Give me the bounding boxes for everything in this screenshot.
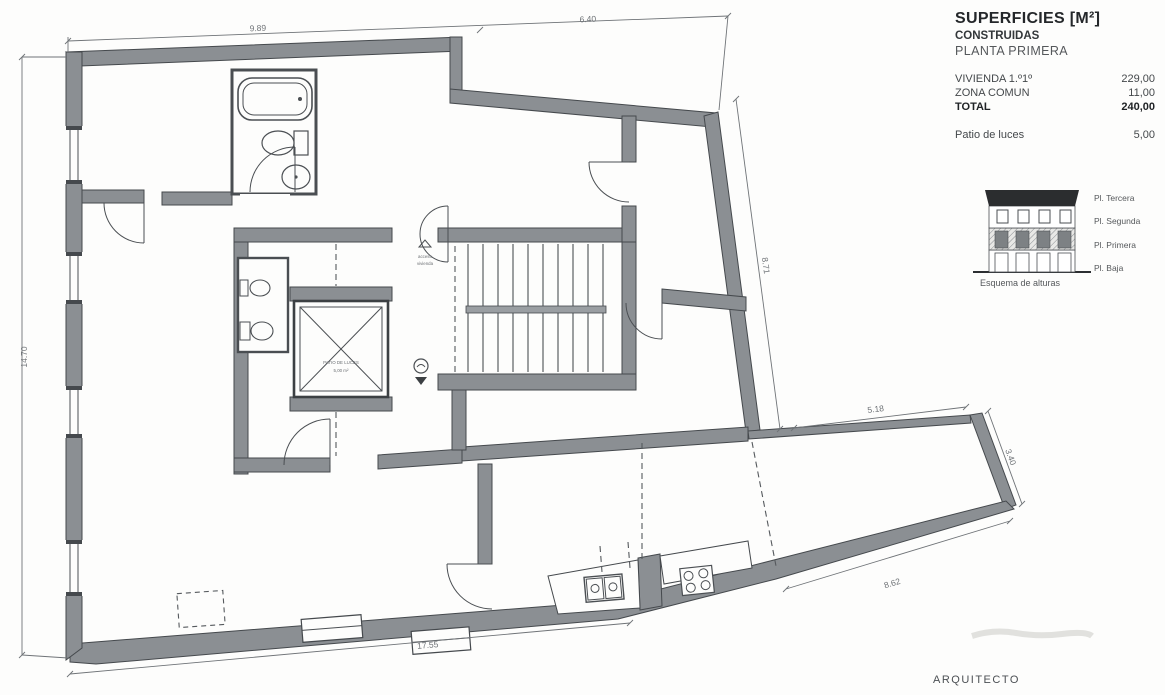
door-arc <box>589 162 629 202</box>
table-row: ZONA COMUN 11,00 <box>955 86 1155 100</box>
floor-label: Pl. Segunda <box>1094 216 1140 226</box>
elevation-schematic-icon <box>973 182 1093 282</box>
row-value: 240,00 <box>1121 100 1155 114</box>
stairwell <box>466 244 606 372</box>
table-row: VIVIENDA 1.º1º 229,00 <box>955 72 1155 86</box>
access-label-2: vivienda <box>417 261 434 266</box>
surfaces-table: VIVIENDA 1.º1º 229,00 ZONA COMUN 11,00 T… <box>955 72 1155 142</box>
sink-icon <box>282 165 310 189</box>
toilet-icon <box>262 131 308 155</box>
wall-top-right <box>450 89 716 127</box>
dim-left: 14.70 <box>19 346 29 368</box>
surfaces-panel: SUPERFICIES [M²] CONSTRUIDAS PLANTA PRIM… <box>955 10 1155 142</box>
window <box>63 540 84 596</box>
elevation-caption: Esquema de alturas <box>980 278 1060 288</box>
access-label-1: acceso <box>418 254 432 259</box>
row-label: ZONA COMUN <box>955 86 1030 100</box>
wall-bottom <box>70 501 1014 664</box>
window <box>63 252 84 304</box>
door-arc <box>104 203 144 243</box>
dim-top-right: 6.40 <box>579 14 596 25</box>
row-value: 229,00 <box>1121 72 1155 86</box>
dim-wing-bottom: 8.62 <box>883 576 902 590</box>
dimension-lines <box>19 13 1025 677</box>
stair-direction-icon <box>414 359 428 385</box>
wall-kitchen-step <box>638 554 662 610</box>
panel-subtitle-1: CONSTRUIDAS <box>955 30 1155 42</box>
stair-rail <box>466 306 606 313</box>
floor-label: Pl. Tercera <box>1094 193 1134 203</box>
dim-bottom: 17.55 <box>417 639 439 651</box>
dim-wing-top: 5.18 <box>867 403 885 415</box>
access-marker: acceso vivienda <box>417 240 434 266</box>
window <box>63 386 84 438</box>
window <box>63 126 84 184</box>
bathroom-core <box>238 258 288 352</box>
window <box>301 615 363 643</box>
dim-right-upper: 8.71 <box>760 257 772 275</box>
sheet: PATIO DE LUCES 5,00 m² acceso vivienda <box>0 0 1165 695</box>
interior-walls <box>82 116 748 564</box>
row-label: TOTAL <box>955 100 991 114</box>
bathroom-top <box>232 70 316 200</box>
wall-top-left <box>66 37 462 66</box>
door-arc <box>447 564 492 609</box>
row-value: 11,00 <box>1128 86 1155 100</box>
panel-subtitle-2: PLANTA PRIMERA <box>955 44 1155 58</box>
patio-area-label: 5,00 m² <box>334 368 349 373</box>
wall-right <box>704 112 760 432</box>
kitchen-sink-icon <box>584 574 624 602</box>
toilet-icon <box>240 322 273 340</box>
dashed-box <box>177 590 225 627</box>
outer-walls <box>66 37 1016 664</box>
patio-label: PATIO DE LUCES <box>323 360 359 365</box>
row-label: Patio de luces <box>955 128 1024 142</box>
panel-title: SUPERFICIES [M²] <box>955 10 1155 28</box>
dim-wing-right: 3.40 <box>1003 447 1018 466</box>
row-value: 5,00 <box>1134 128 1155 142</box>
table-row-total: TOTAL 240,00 <box>955 100 1155 114</box>
watermark <box>972 632 1092 636</box>
table-row-patio: Patio de luces 5,00 <box>955 128 1155 142</box>
architect-label: ARQUITECTO <box>933 674 1020 686</box>
floor-label: Pl. Baja <box>1094 263 1123 273</box>
stove-icon <box>680 565 715 595</box>
patio-de-luces: PATIO DE LUCES 5,00 m² <box>294 301 388 397</box>
floor-label: Pl. Primera <box>1094 240 1136 250</box>
row-label: VIVIENDA 1.º1º <box>955 72 1032 86</box>
bathtub-icon <box>238 78 312 120</box>
dim-top-left: 9.89 <box>249 23 266 34</box>
sink-icon <box>240 280 270 296</box>
